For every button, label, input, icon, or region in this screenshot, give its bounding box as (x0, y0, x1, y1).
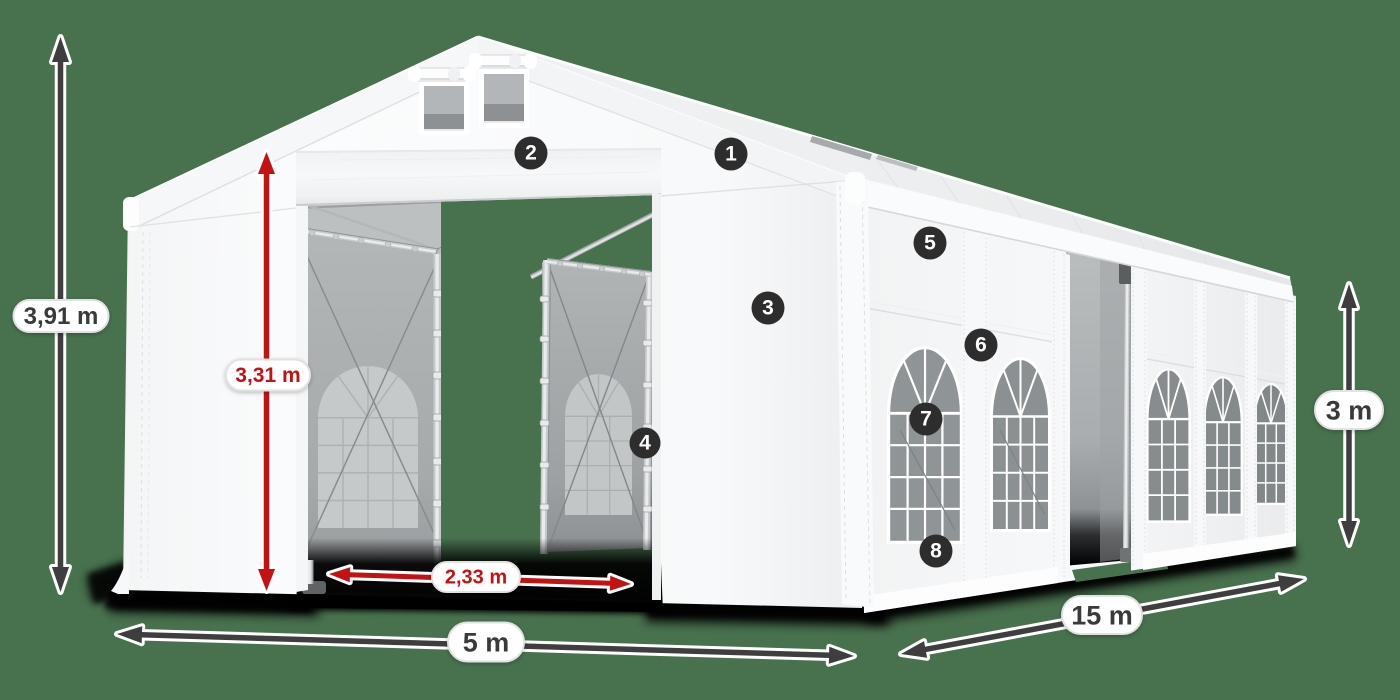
svg-text:15 m: 15 m (1071, 601, 1133, 631)
svg-text:3,91 m: 3,91 m (24, 303, 99, 330)
svg-text:7: 7 (920, 408, 932, 431)
svg-text:4: 4 (639, 432, 651, 455)
svg-text:2,33 m: 2,33 m (445, 567, 507, 589)
svg-text:1: 1 (725, 143, 737, 166)
svg-text:6: 6 (975, 334, 987, 357)
svg-text:3: 3 (762, 297, 774, 320)
svg-text:5: 5 (924, 232, 936, 255)
svg-text:3 m: 3 m (1326, 396, 1373, 426)
svg-text:8: 8 (930, 540, 942, 563)
svg-text:2: 2 (525, 142, 537, 165)
svg-text:3,31 m: 3,31 m (235, 364, 300, 387)
svg-text:5 m: 5 m (463, 628, 510, 658)
